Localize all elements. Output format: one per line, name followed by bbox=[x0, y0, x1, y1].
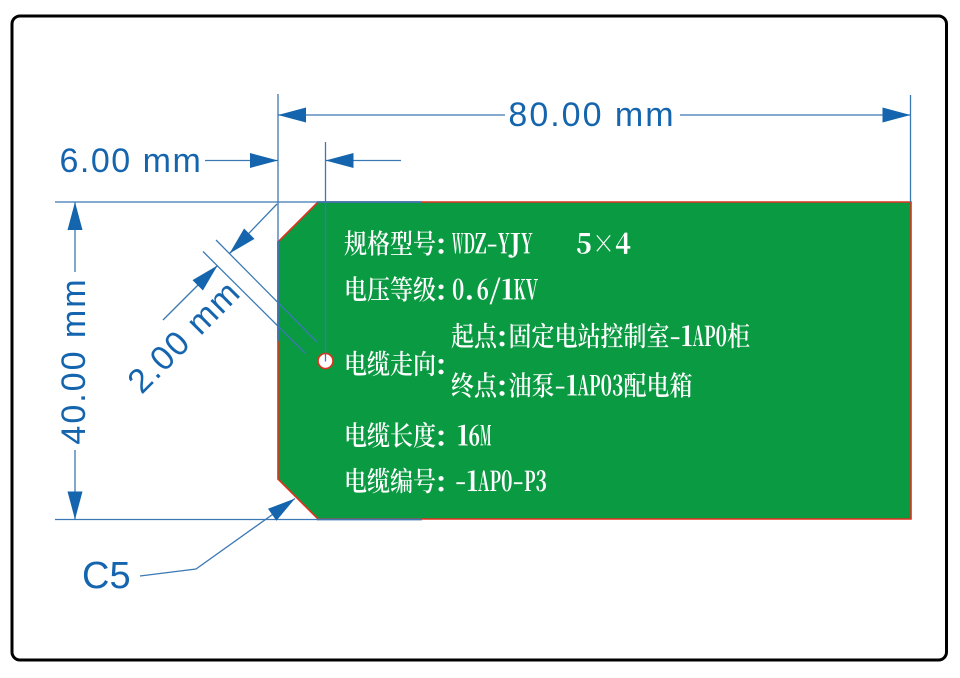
svg-text:80.00 mm: 80.00 mm bbox=[508, 96, 675, 134]
svg-text:C5: C5 bbox=[82, 555, 131, 597]
svg-text:6.00 mm: 6.00 mm bbox=[60, 142, 203, 180]
svg-text:40.00 mm: 40.00 mm bbox=[55, 277, 93, 444]
